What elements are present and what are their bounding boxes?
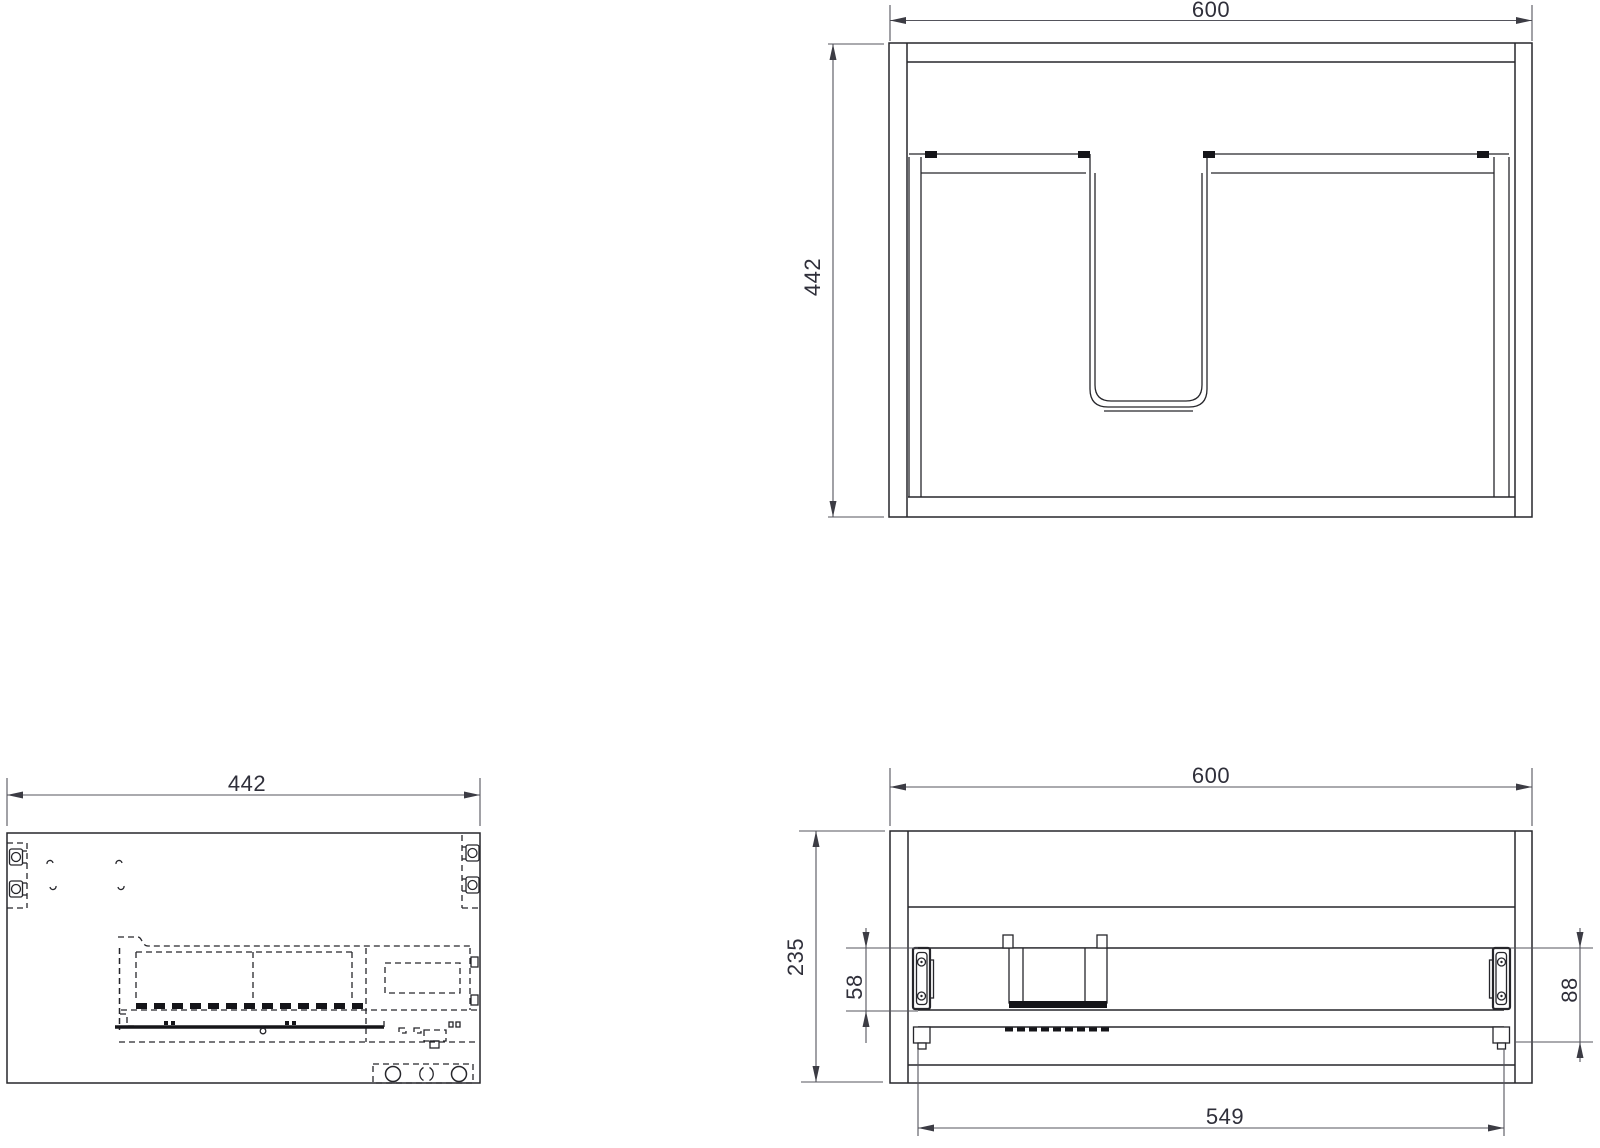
plumbing-cutout [1090, 154, 1207, 411]
drawer-tab [1203, 151, 1215, 158]
front-runner-offset-dimension-label: 58 [842, 974, 867, 999]
front-view: 600 235 58 88 [783, 763, 1593, 1136]
side-drawer-hidden [118, 937, 478, 1048]
drawer-tab [1078, 151, 1090, 158]
front-width-dimension-label: 600 [1192, 763, 1230, 788]
drawer-tab [925, 151, 937, 158]
drawing-sheet: 600 442 [0, 0, 1600, 1148]
side-damper-box [385, 963, 460, 993]
plan-cabinet-outline [889, 43, 1532, 517]
plan-depth-dimension: 442 [800, 44, 884, 517]
front-left-bracket [913, 948, 934, 1049]
front-runner-length-dimension: 549 [918, 1049, 1504, 1136]
side-depth-dimension-label: 442 [228, 771, 266, 796]
side-depth-dimension: 442 [7, 771, 480, 826]
front-runner-offset-dimension: 58 [842, 928, 918, 1043]
plan-width-dimension: 600 [890, 0, 1532, 41]
drawer-tab [1477, 151, 1489, 158]
front-bracket-drop-dimension: 88 [1510, 928, 1593, 1062]
side-view: 442 [7, 771, 480, 1083]
front-height-dimension-label: 235 [783, 938, 808, 976]
side-cabinet-outline [7, 833, 480, 1083]
plan-depth-dimension-label: 442 [800, 258, 825, 296]
side-screw-marks [47, 860, 124, 889]
front-bracket-drop-dimension-label: 88 [1557, 977, 1582, 1002]
plan-width-dimension-label: 600 [1192, 0, 1230, 22]
plan-view: 600 442 [800, 0, 1532, 517]
front-height-dimension: 235 [783, 831, 885, 1082]
front-right-bracket [1490, 948, 1511, 1049]
front-width-dimension: 600 [890, 763, 1532, 826]
side-bracket-rear [7, 843, 27, 908]
side-bracket-front [462, 835, 480, 908]
side-clip-box [373, 1064, 473, 1083]
front-cabinet-outline [890, 831, 1532, 1083]
plan-drawer [909, 151, 1509, 497]
front-runner-length-dimension-label: 549 [1206, 1104, 1244, 1129]
front-waste-box [1003, 935, 1110, 1030]
side-drawer-runner [115, 1021, 384, 1034]
